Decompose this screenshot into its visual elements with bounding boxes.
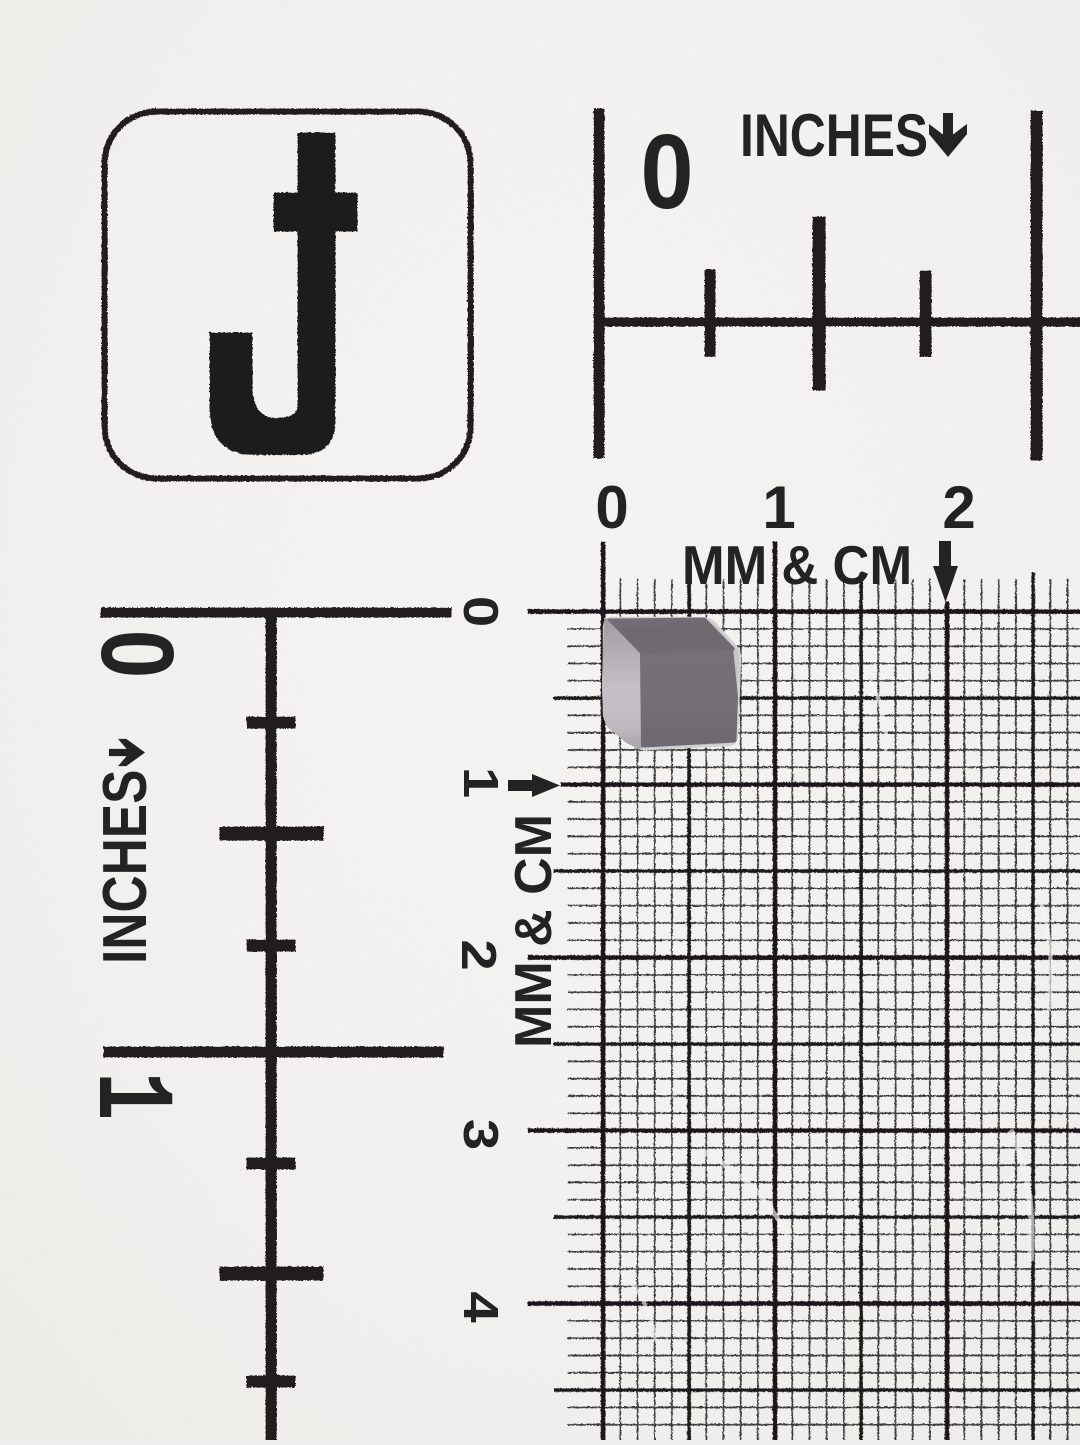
svg-text:1: 1	[453, 767, 508, 798]
svg-text:INCHES: INCHES	[740, 102, 928, 169]
svg-text:MM & CM: MM & CM	[682, 535, 912, 596]
svg-text:0: 0	[640, 113, 693, 231]
svg-text:MM & CM: MM & CM	[505, 814, 563, 1048]
svg-text:INCHES: INCHES	[91, 770, 161, 964]
svg-text:2: 2	[942, 474, 975, 541]
svg-text:1: 1	[762, 474, 795, 541]
svg-text:0: 0	[595, 474, 628, 541]
svg-text:4: 4	[453, 1291, 508, 1323]
svg-text:0: 0	[453, 596, 508, 627]
svg-text:0: 0	[79, 630, 194, 679]
svg-text:2: 2	[451, 939, 506, 970]
svg-text:1: 1	[66, 1072, 191, 1121]
svg-text:3: 3	[453, 1119, 508, 1150]
